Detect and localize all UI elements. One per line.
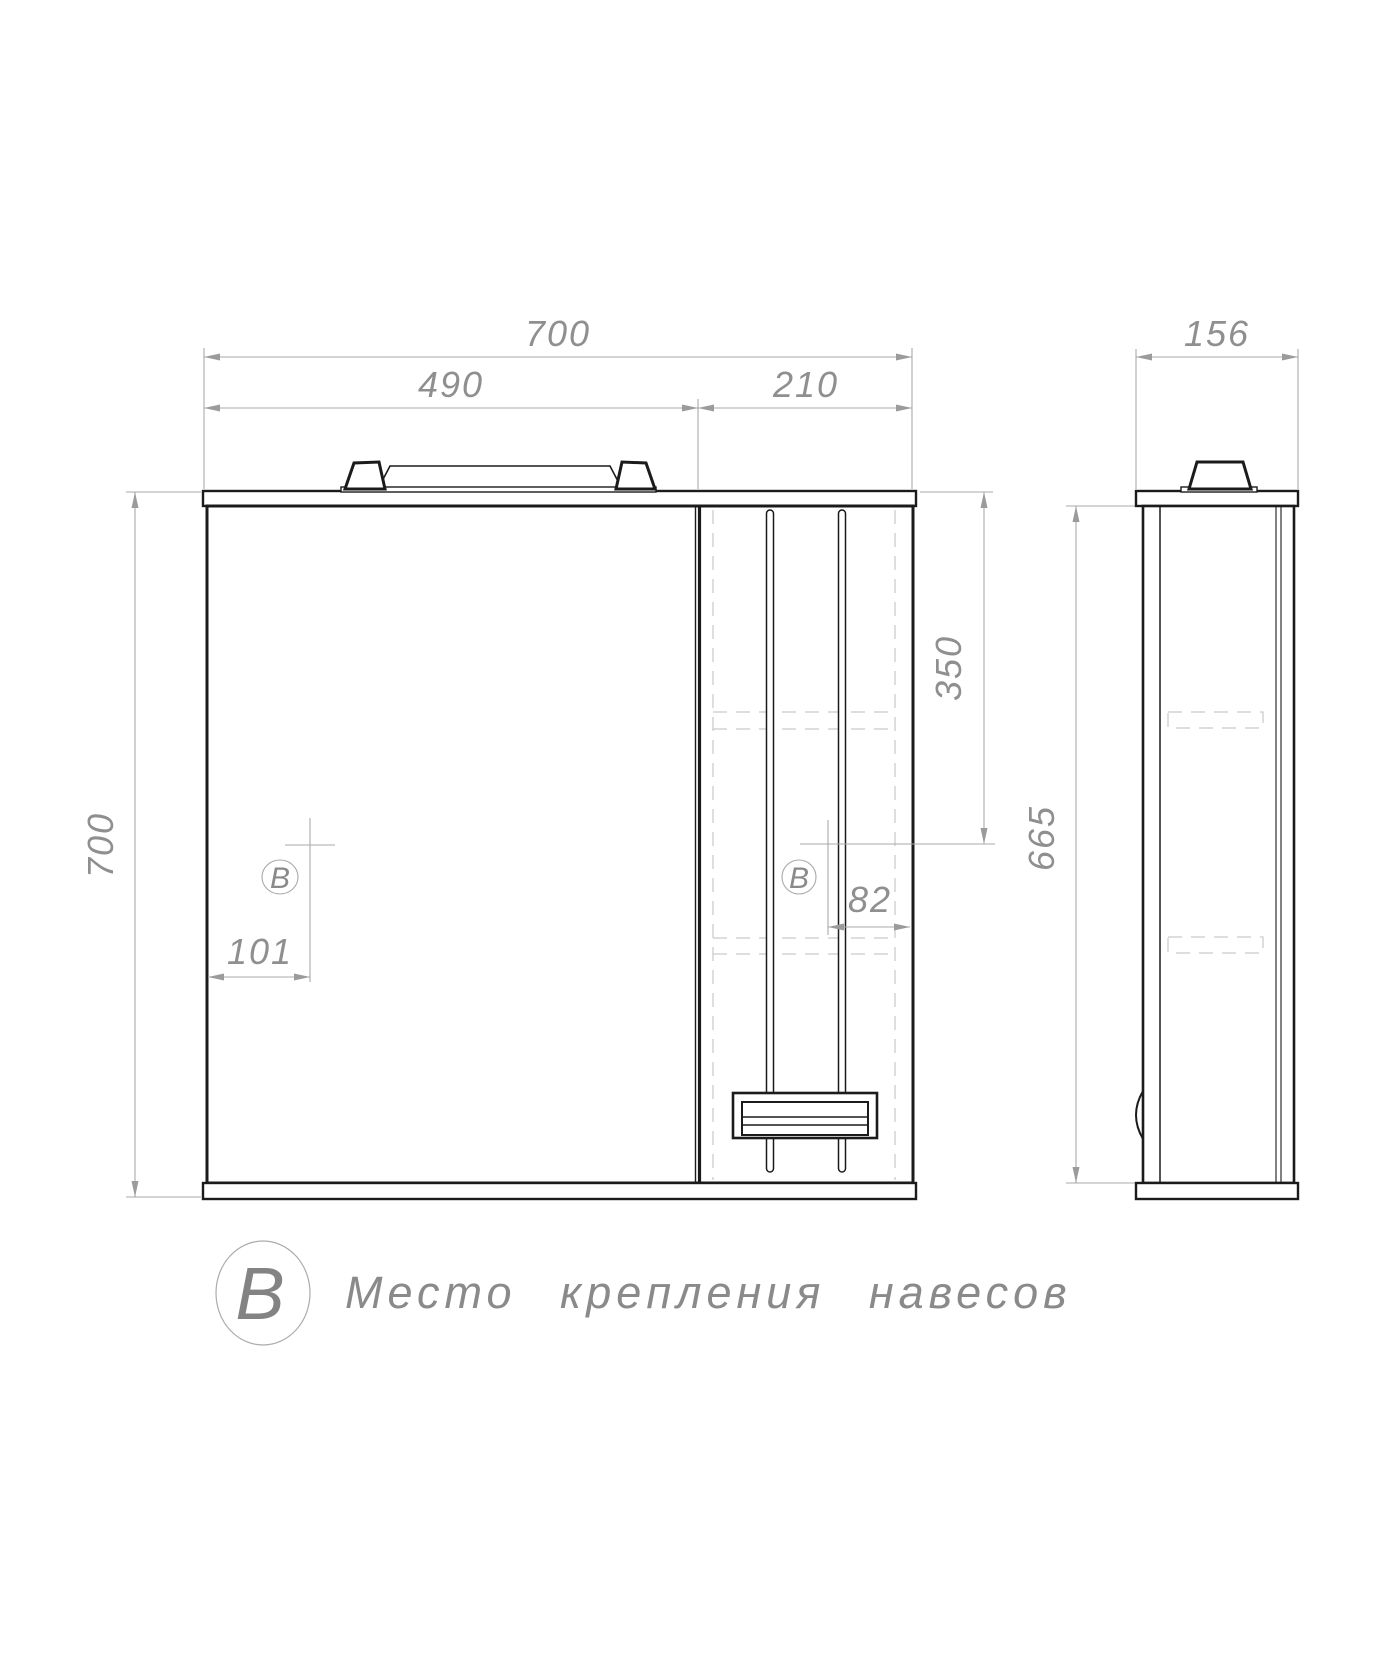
lamp-diffuser <box>379 466 621 487</box>
legend-note: Место крепления навесов <box>345 1267 1072 1318</box>
arrowhead <box>1282 354 1298 361</box>
handle-inner <box>742 1102 868 1135</box>
dim-hinge-from-edge: 82 <box>848 879 892 920</box>
arrowhead <box>698 405 714 412</box>
arrowhead <box>1136 354 1152 361</box>
side-lamp-fixture <box>1181 462 1257 492</box>
door-groove-left <box>767 510 774 1172</box>
dim-mirror-hinge-offset: 101 <box>227 931 293 972</box>
arrowhead <box>204 405 220 412</box>
dim-door-width: 210 <box>772 364 839 405</box>
arrowhead <box>132 492 139 508</box>
arrowhead <box>1073 506 1080 522</box>
dim-mirror-width: 490 <box>418 364 484 405</box>
arrowhead <box>204 354 220 361</box>
dim-side-height: 665 <box>1021 805 1062 871</box>
side-body <box>1143 506 1294 1183</box>
marker-letter: B <box>270 862 290 895</box>
arrowhead <box>132 1181 139 1197</box>
door-groove-right <box>839 510 846 1172</box>
lamp-endcap-right <box>616 462 655 489</box>
front-view: 700 490 210 700 <box>80 313 995 1199</box>
dim-side-depth: 156 <box>1184 313 1250 354</box>
arrowhead <box>682 405 698 412</box>
lamp-endcap-left <box>345 462 385 489</box>
arrowhead <box>896 354 912 361</box>
dim-hinge-from-top: 350 <box>928 635 969 701</box>
arrowhead <box>1073 1167 1080 1183</box>
legend: B Место крепления навесов <box>216 1241 1072 1345</box>
drawing-canvas: 700 490 210 700 <box>0 0 1400 1660</box>
technical-drawing: 700 490 210 700 <box>0 0 1400 1660</box>
legend-symbol-letter: B <box>235 1252 284 1335</box>
side-bottom-panel <box>1136 1183 1298 1199</box>
side-top-panel <box>1136 491 1298 506</box>
arrowhead <box>981 828 988 844</box>
arrowhead <box>896 405 912 412</box>
arrowhead <box>981 492 988 508</box>
marker-letter: B <box>789 862 809 895</box>
door-handle <box>733 1093 877 1138</box>
side-view: 156 665 <box>1021 313 1298 1199</box>
side-lamp-body <box>1189 462 1251 489</box>
bottom-panel <box>203 1183 916 1199</box>
dim-front-width: 700 <box>525 313 591 354</box>
top-panel <box>203 491 916 506</box>
dim-front-height: 700 <box>80 812 121 878</box>
lamp-fixture <box>341 462 656 492</box>
lamp-base <box>341 487 656 492</box>
